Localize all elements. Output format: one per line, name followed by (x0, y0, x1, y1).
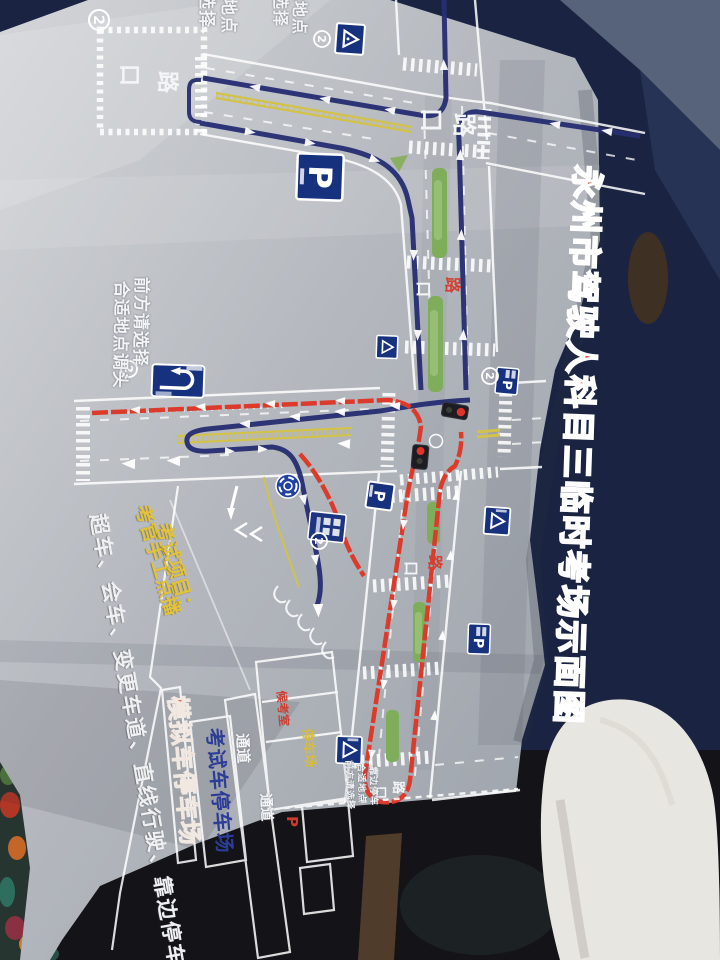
instruction-top-b1: 前方请选择 (272, 0, 288, 27)
road-label-lu: 路 (450, 113, 478, 138)
instruction-top-b2: 合适地点 (291, 0, 307, 35)
instruction-uturn-col1: 前方请选择 (130, 277, 149, 367)
road-label-lu-red: 路 (443, 277, 462, 294)
course-map-svg: P P P P (0, 0, 720, 960)
area-corridor-1: 通道 (234, 733, 251, 764)
parking-sign-upper-right: P (495, 367, 519, 395)
road-label-kou: 口 (414, 281, 433, 297)
parking-sign-lower: P (467, 624, 490, 655)
instruction-top-a2: 合适地点 (219, 0, 236, 34)
parking-letter: P (498, 380, 514, 391)
photo-of-test-course-map: P P P P (0, 0, 720, 960)
area-waiting-room: 候考室 (275, 690, 290, 727)
circled-two: 2 (90, 15, 106, 25)
circled-two: 2 (483, 372, 496, 380)
red-parking-letter: P (283, 816, 301, 827)
area-parking: 停车场 (300, 728, 316, 768)
road-label-lu-red: 路 (426, 555, 444, 571)
road-label-lu: 路 (390, 781, 406, 795)
parking-sign-center: P (365, 481, 394, 510)
circled-two: 2 (315, 35, 328, 43)
road-label-lu: 路 (154, 71, 180, 94)
background-brown-object (628, 232, 668, 324)
area-corridor-2: 通道 (258, 793, 273, 822)
parking-sign-large: P (296, 153, 344, 201)
road-label-kou: 口 (402, 561, 420, 576)
instruction-uturn-col2: 合适地点调头 (110, 281, 129, 389)
instruction-pullover-col1: 前方请选择 (343, 760, 354, 810)
warning-triangle-sign-top (335, 23, 365, 55)
road-label-kou: 口 (116, 64, 141, 86)
roundabout-sign (276, 474, 300, 498)
instruction-top-a1: 前方请选择 (197, 0, 214, 28)
traffic-light-south (411, 444, 429, 469)
u-turn-sign (151, 364, 204, 398)
instruction-pullover-col3: 靠边停车 (367, 766, 377, 806)
road-label-kou: 口 (417, 108, 445, 132)
warning-triangle-sign-mid (376, 335, 398, 358)
circled-two: 2 (312, 537, 325, 545)
parking-letter: P (470, 638, 486, 649)
parking-letter: P (301, 165, 340, 190)
instruction-pullover-col2: 合适地点 (355, 763, 365, 803)
warning-triangle-sign-right (483, 507, 510, 536)
